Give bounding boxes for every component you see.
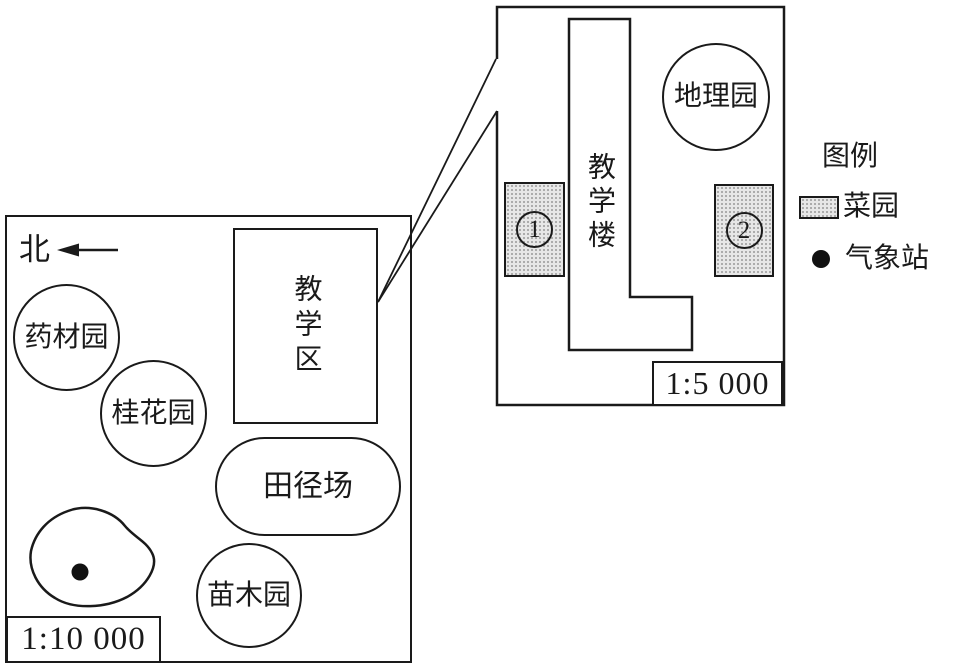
osmanthus-garden-circle: 桂花园 xyxy=(100,360,207,467)
teaching-area-label: 教学区 xyxy=(292,274,320,379)
teaching-building-label-wrap: 教学楼 xyxy=(580,138,618,268)
vegetable-plot-2: 2 xyxy=(714,184,774,277)
detail-scale-label: 1:5 000 xyxy=(666,365,770,402)
track-field-label: 田径场 xyxy=(263,472,353,502)
overview-scale-label: 1:10 000 xyxy=(21,621,145,658)
overview-scale-box: 1:10 000 xyxy=(6,616,161,663)
geography-garden-circle: 地理园 xyxy=(662,43,770,151)
plot-2-circled-number: 2 xyxy=(726,212,763,249)
legend-weather-station-label: 气象站 xyxy=(845,245,929,273)
teaching-area-rect: 教学区 xyxy=(233,228,378,424)
nursery-garden-circle: 苗木园 xyxy=(196,543,302,648)
herb-garden-label: 药材园 xyxy=(24,324,108,352)
detail-scale-box: 1:5 000 xyxy=(652,361,783,406)
nursery-garden-label: 苗木园 xyxy=(207,582,291,610)
legend-vegetable-garden-swatch xyxy=(799,196,839,219)
north-label: 北 xyxy=(19,234,50,265)
osmanthus-garden-label: 桂花园 xyxy=(111,400,195,428)
legend-vegetable-garden-label: 菜园 xyxy=(843,193,899,221)
geography-garden-label: 地理园 xyxy=(674,83,758,111)
legend-title: 图例 xyxy=(822,143,878,171)
teaching-building-label: 教学楼 xyxy=(585,152,613,254)
herb-garden-circle: 药材园 xyxy=(13,284,120,391)
campus-map-figure: 北 药材园 桂花园 教学区 田径场 苗木园 1:10 000 教学楼 地理园 1… xyxy=(0,0,954,669)
vegetable-plot-1: 1 xyxy=(504,182,565,277)
plot-1-circled-number: 1 xyxy=(516,211,553,248)
track-field-stadium: 田径场 xyxy=(215,437,401,536)
legend-weather-station-dot xyxy=(812,250,830,268)
